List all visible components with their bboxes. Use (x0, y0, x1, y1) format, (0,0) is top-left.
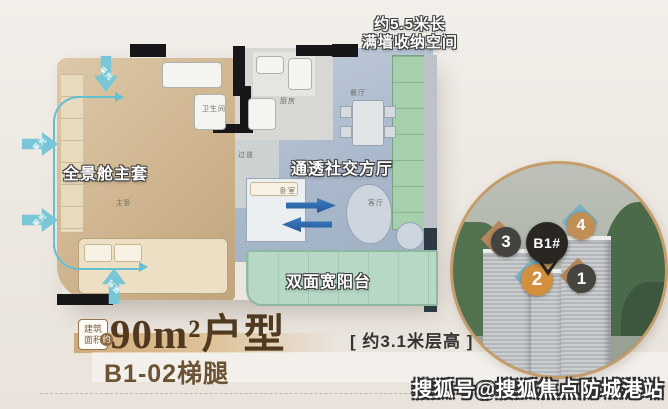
room-label-hallway: 过道 (238, 150, 254, 160)
room-label-bedroom: 卧室 (280, 186, 296, 196)
flow-line-bottom (53, 182, 143, 270)
chair (384, 126, 396, 138)
living-hall-callout: 通透社交方厅 (291, 155, 393, 179)
dining-table (352, 100, 384, 146)
shower (248, 98, 276, 130)
tower-marker-3: 3 (491, 227, 521, 257)
chair (340, 126, 352, 138)
site-location-inset: 3 4 2 1 B1# (450, 161, 668, 379)
flow-arrowhead-icon (139, 262, 148, 272)
chair (340, 106, 352, 118)
headline-area-type: 90m²户型 (110, 300, 285, 360)
wall-segment (130, 44, 166, 57)
master-suite-callout: 全景舱主套 (63, 160, 148, 184)
storage-callout: 约5.5米长 满墙收纳空间 (352, 16, 468, 52)
storage-wall-highlight (392, 55, 426, 230)
armchair (396, 222, 424, 250)
sink (256, 56, 284, 74)
toilet (288, 58, 312, 90)
b1-pin: B1# (526, 222, 568, 264)
chair (384, 106, 396, 118)
tower-building (561, 236, 611, 379)
room-label-kitchen: 厨房 (280, 96, 296, 106)
unit-label: B1-02梯腿 (104, 354, 229, 390)
promo-floorplan-page: 卫生间 厨房 过道 卧室 客厅 餐厅 主卧 采光 采光 采光 采光 约5.5米长… (0, 0, 668, 409)
bathtub (162, 62, 222, 88)
flow-arrowhead-icon (115, 92, 124, 102)
room-label-living: 客厅 (368, 198, 384, 208)
storage-callout-line1: 约5.5米长 (352, 16, 468, 34)
wall-segment (57, 294, 113, 305)
watermark: 搜狐号@搜狐焦点防城港站 (412, 373, 664, 402)
room-label-dining: 餐厅 (350, 88, 366, 98)
tower-marker-1: 1 (567, 264, 596, 293)
room-label-bath: 卫生间 (202, 104, 226, 114)
balcony-callout: 双面宽阳台 (286, 268, 371, 292)
tower-marker-4: 4 (567, 212, 595, 240)
storage-callout-line2: 满墙收纳空间 (352, 34, 468, 52)
sofa (346, 184, 392, 244)
right-wall (424, 55, 437, 228)
